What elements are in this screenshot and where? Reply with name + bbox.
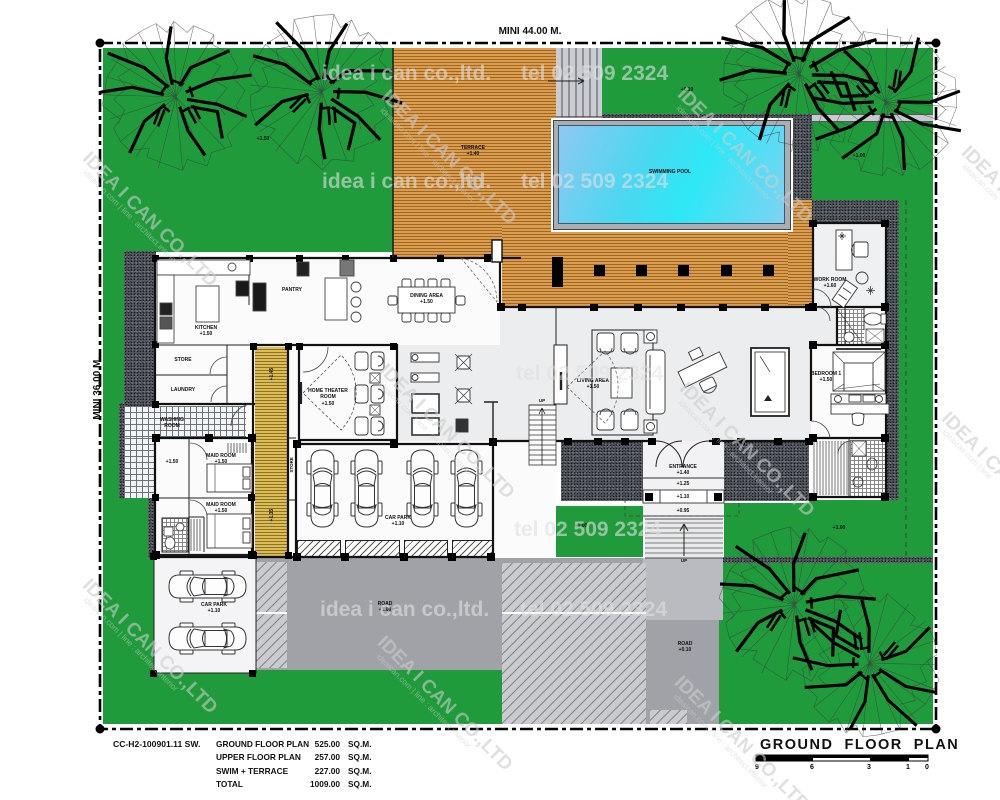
svg-text:1: 1: [906, 764, 910, 771]
svg-text:3: 3: [867, 764, 871, 771]
svg-text:6: 6: [810, 764, 814, 771]
svg-text:0: 0: [925, 764, 929, 771]
